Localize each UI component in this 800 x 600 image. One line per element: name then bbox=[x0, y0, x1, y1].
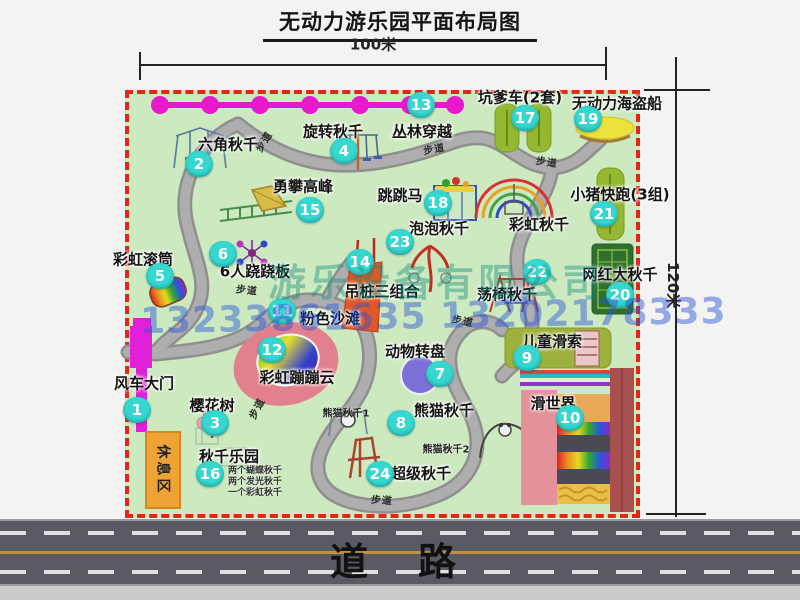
marker-15: 15 bbox=[296, 197, 324, 223]
marker-17: 17 bbox=[511, 105, 539, 131]
marker-16: 16 bbox=[196, 461, 224, 487]
label-animal-turntable: 动物转盘 bbox=[385, 341, 445, 362]
swing-park-detail-2: 两个发光秋千 bbox=[228, 477, 282, 488]
marker-6: 6 bbox=[209, 241, 237, 267]
label-windmill-gate: 风车大门 bbox=[114, 373, 174, 394]
walkway-label: 步道 bbox=[371, 491, 394, 507]
label-jungle-crossing: 丛林穿越 bbox=[392, 121, 452, 142]
dimension-width-label: 100米 bbox=[350, 34, 396, 55]
label-panda-swing-1: 熊猫秋千1 bbox=[323, 405, 370, 420]
park-plan-canvas: 无动力游乐园平面布局图 bbox=[0, 0, 800, 600]
rest-area-label: 休息区 bbox=[153, 445, 173, 496]
swing-park-detail-3: 一个彩虹秋千 bbox=[228, 488, 282, 499]
marker-2: 2 bbox=[185, 151, 213, 177]
label-carousel-swing: 旋转秋千 bbox=[303, 121, 363, 142]
marker-3: 3 bbox=[201, 410, 229, 436]
rest-area: 休息区 bbox=[145, 431, 181, 509]
walkway-label: 步道 bbox=[235, 280, 258, 297]
swing-park-detail-1: 两个蝴蝶秋千 bbox=[228, 466, 282, 477]
swing-park-details: 两个蝴蝶秋千 两个发光秋千 一个彩虹秋千 bbox=[228, 466, 282, 499]
marker-7: 7 bbox=[426, 361, 454, 387]
label-rainbow-cloud: 彩虹蹦蹦云 bbox=[259, 367, 334, 388]
walkway-label: 步道 bbox=[535, 152, 559, 170]
label-climbing-peak: 勇攀高峰 bbox=[273, 176, 333, 197]
label-panda-swing: 熊猫秋千 bbox=[414, 400, 474, 421]
label-pig-run: 小猪快跑(3组) bbox=[570, 184, 669, 205]
marker-4: 4 bbox=[330, 138, 358, 164]
marker-24: 24 bbox=[366, 461, 394, 487]
marker-19: 19 bbox=[574, 106, 602, 132]
label-super-swing: 超级秋千 bbox=[391, 463, 451, 484]
marker-18: 18 bbox=[424, 190, 452, 216]
label-pit-car: 坑爹车(2套) bbox=[478, 87, 562, 108]
marker-1: 1 bbox=[123, 397, 151, 423]
marker-5: 5 bbox=[146, 263, 174, 289]
road-label: 道路 bbox=[330, 531, 506, 586]
label-rainbow-swing: 彩虹秋千 bbox=[509, 214, 569, 235]
page-title: 无动力游乐园平面布局图 bbox=[263, 6, 537, 42]
marker-8: 8 bbox=[387, 410, 415, 436]
marker-12: 12 bbox=[258, 337, 286, 363]
marker-13: 13 bbox=[407, 92, 435, 118]
label-bubble-swing: 泡泡秋千 bbox=[409, 218, 469, 239]
label-panda-swing-2: 熊猫秋千2 bbox=[423, 441, 470, 456]
marker-21: 21 bbox=[590, 201, 618, 227]
marker-9: 9 bbox=[513, 345, 541, 371]
road-shoulder bbox=[0, 584, 800, 600]
road: 道路 bbox=[0, 519, 800, 586]
marker-10: 10 bbox=[556, 405, 584, 431]
label-hex-swing: 六角秋千 bbox=[198, 134, 258, 155]
label-jumping-horse: 跳跳马 bbox=[377, 185, 422, 206]
